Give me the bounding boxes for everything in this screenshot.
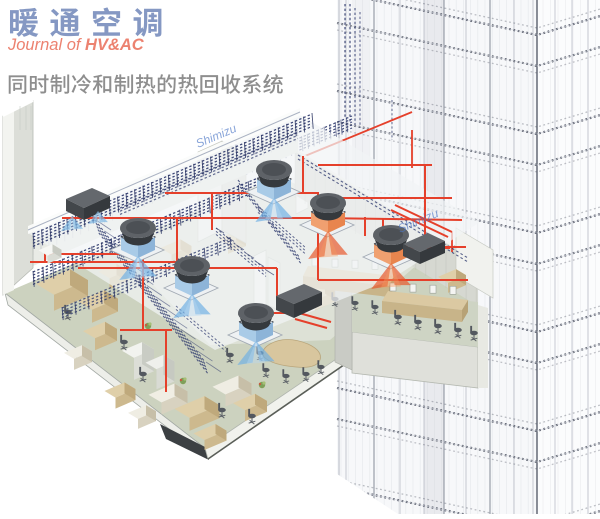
- svg-text:Journal of HV&AC: Journal of HV&AC: [7, 36, 145, 54]
